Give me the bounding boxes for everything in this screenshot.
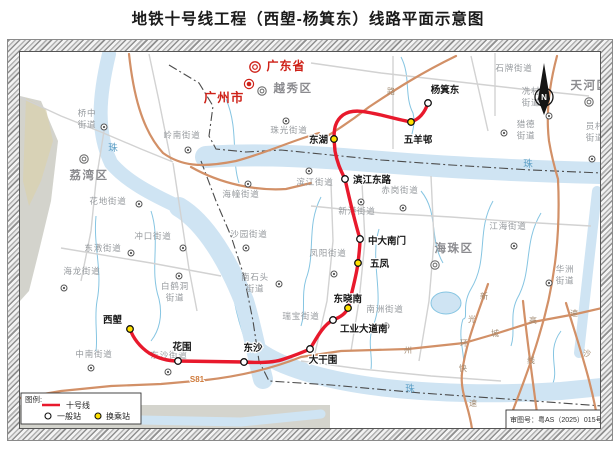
street-office-marker-icon (278, 283, 280, 285)
pearl-river (101, 54, 601, 422)
street-office-marker-icon (548, 115, 550, 117)
district-label: 天河区 (571, 78, 602, 92)
station-label: 五羊邨 (404, 134, 433, 146)
approval-box: 审图号：粤AS（2025）015号 (506, 410, 601, 429)
legend-line-label: 十号线 (66, 400, 90, 410)
district-label: 海珠区 (435, 241, 474, 255)
road-label: 高 (529, 315, 537, 325)
map-ornate-frame: 桥中街道岭南街道珠光街道花地街道海幢街道沙园街道冲口街道东漖街道海龙街道白鹤洞街… (8, 40, 612, 440)
street-office-marker-icon (90, 367, 92, 369)
street-label: 南石头街道 (241, 272, 269, 294)
street-office-marker-icon (187, 149, 189, 151)
lake (431, 292, 461, 314)
street-label: 瑞宝街道 (282, 311, 319, 321)
street-office-marker-icon (285, 120, 287, 122)
street-office-marker-icon (308, 170, 310, 172)
street-office-marker-icon (130, 252, 132, 254)
roadnum-label: S81 (190, 375, 205, 384)
route-map-svg: 桥中街道岭南街道珠光街道花地街道海幢街道沙园街道冲口街道东漖街道海龙街道白鹤洞街… (20, 52, 601, 429)
street-office-marker-icon (182, 247, 184, 249)
street-label: 凤阳街道 (309, 248, 346, 258)
road-label: 城 (491, 329, 499, 338)
transfer-station-dot (345, 305, 352, 312)
map-canvas: 桥中街道岭南街道珠光街道花地街道海幢街道沙园街道冲口街道东漖街道海龙街道白鹤洞街… (19, 51, 601, 429)
legend-regular-station-icon (45, 413, 51, 419)
city-seat-marker-icon (247, 82, 252, 87)
street-label: 海龙街道 (63, 266, 100, 276)
district-seat-marker-icon (258, 87, 266, 95)
road-label: 环 (460, 339, 468, 348)
street-label: 中南街道 (75, 349, 112, 359)
page-title: 地铁十号线工程（西塱-杨箕东）线路平面示意图 (0, 7, 616, 29)
street-office-marker-icon (360, 201, 362, 203)
river-label: 珠 (523, 158, 533, 170)
street-label: 珠光街道 (270, 125, 307, 135)
district-label: 越秀区 (273, 81, 313, 95)
transfer-station-dot (408, 119, 415, 126)
street-office-marker-icon (63, 287, 65, 289)
river-label: 珠 (405, 383, 415, 395)
transfer-station-dot (127, 326, 134, 333)
road-label: 州 (404, 346, 412, 355)
street-office-marker-icon (591, 158, 593, 160)
station-label: 花围 (172, 341, 191, 353)
street-label: 员村街道 (586, 121, 601, 143)
transfer-station-dot (331, 136, 338, 143)
station-label: 工业大道南 (340, 323, 388, 335)
street-label: 冲口街道 (134, 231, 171, 241)
legend-heading: 图例: (25, 394, 42, 404)
legend-transfer-station-icon (95, 413, 101, 419)
street-label: 华洲街道 (556, 264, 575, 286)
station-label: 杨箕东 (431, 84, 460, 96)
street-label: 滨江街道 (296, 177, 333, 187)
street-label: 沙园街道 (230, 229, 267, 239)
province-seat-marker-icon (250, 62, 260, 72)
regular-station-dot (357, 236, 364, 243)
road-label: 沙 (583, 349, 591, 358)
street-office-marker-icon (333, 273, 335, 275)
street-label: 冼村街道 (522, 86, 541, 108)
station-label: 中大南门 (368, 235, 406, 247)
station-label: 东沙 (243, 342, 263, 354)
street-office-marker-icon (402, 207, 404, 209)
street-office-marker-icon (513, 245, 515, 247)
district-label: 荔湾区 (69, 168, 109, 182)
station-label: 东湖 (309, 134, 329, 146)
road-label: 线 (527, 355, 535, 365)
street-label: 南洲街道 (366, 304, 403, 314)
station-label: 西塱 (103, 314, 123, 326)
street-office-marker-icon (245, 247, 247, 249)
regular-station-dot (330, 317, 337, 324)
legend-regular-label: 一般站 (57, 411, 81, 421)
regular-station-dot (425, 100, 432, 107)
legend: 图例: 十号线 一般站 换乘站 (21, 393, 141, 424)
province-label: 广东省 (266, 58, 305, 73)
street-office-marker-icon (247, 183, 249, 185)
street-label: 石牌街道 (495, 63, 532, 73)
station-label: 东晓南 (333, 293, 362, 305)
street-label: 海幢街道 (222, 189, 259, 199)
street-label: 花地街道 (89, 196, 126, 206)
regular-station-dot (175, 358, 182, 365)
street-label: 新港街道 (338, 206, 375, 216)
road-label: 路 (387, 86, 395, 96)
street-label: 东漖街道 (84, 243, 121, 253)
road-label: 快 (459, 363, 467, 373)
district-seat-marker-icon (80, 155, 88, 163)
regular-station-dot (307, 346, 314, 353)
district-seat-marker-icon (431, 261, 439, 269)
north-arrow-label: N (541, 93, 547, 102)
street-label: 赤岗街道 (381, 185, 418, 195)
street-label: 白鹤洞街道 (161, 281, 189, 303)
road-label: 新 (480, 291, 488, 301)
street-office-marker-icon (103, 126, 105, 128)
street-label: 桥中街道 (78, 108, 97, 130)
road-label: 光 (468, 314, 476, 324)
river-label: 珠 (108, 142, 118, 154)
station-label: 五凤 (370, 259, 390, 270)
street-label: 猎德街道 (517, 119, 536, 141)
street-office-marker-icon (503, 132, 505, 134)
district-seat-marker-icon (585, 98, 593, 106)
transfer-station-dot (355, 260, 362, 267)
street-label: 岭南街道 (163, 130, 200, 140)
road-label: 速 (469, 399, 477, 408)
street-office-marker-icon (548, 282, 550, 284)
regular-station-dot (342, 176, 349, 183)
station-label: 滨江东路 (353, 174, 392, 186)
city-label: 广州市 (204, 90, 245, 105)
legend-transfer-label: 换乘站 (106, 411, 130, 421)
regular-station-dot (241, 359, 248, 366)
street-label: 江海街道 (489, 221, 526, 231)
road-label: 速 (570, 309, 578, 318)
approval-note: 审图号：粤AS（2025）015号 (510, 415, 601, 424)
street-office-marker-icon (138, 203, 140, 205)
street-office-marker-icon (178, 275, 180, 277)
station-label: 大干围 (309, 354, 338, 366)
street-office-marker-icon (167, 371, 169, 373)
